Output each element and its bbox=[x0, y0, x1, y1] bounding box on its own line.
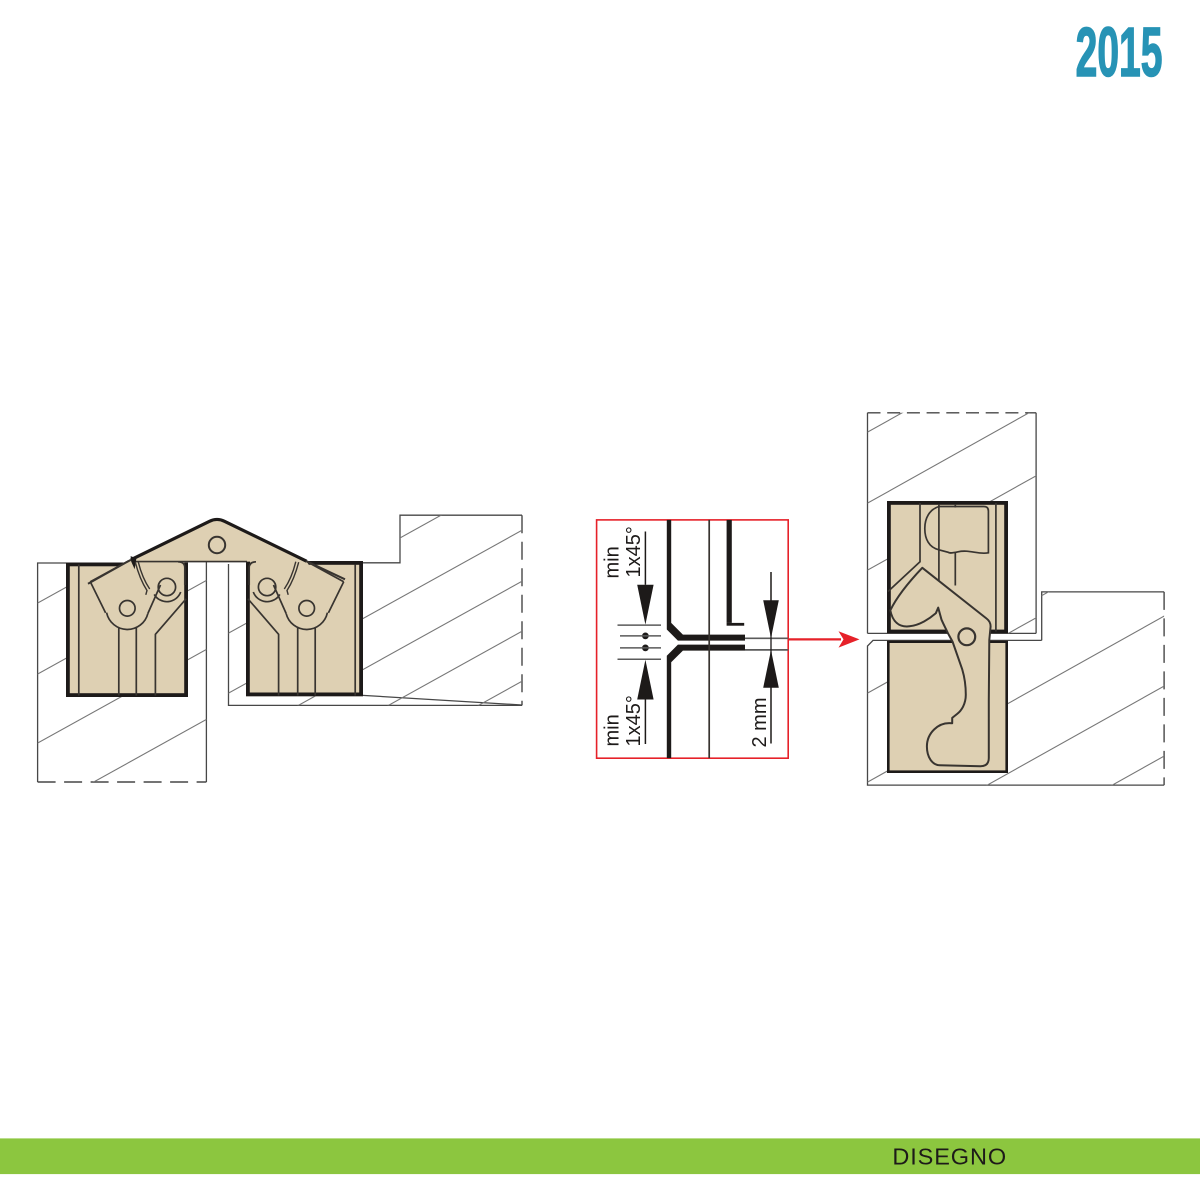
svg-text:1x45°: 1x45° bbox=[623, 695, 645, 746]
svg-text:min: min bbox=[602, 546, 624, 578]
svg-text:1x45°: 1x45° bbox=[623, 526, 645, 577]
svg-text:DISEGNO: DISEGNO bbox=[892, 1144, 1007, 1170]
svg-text:2 mm: 2 mm bbox=[749, 698, 771, 748]
svg-text:2015: 2015 bbox=[1076, 14, 1163, 92]
svg-text:min: min bbox=[602, 714, 624, 746]
